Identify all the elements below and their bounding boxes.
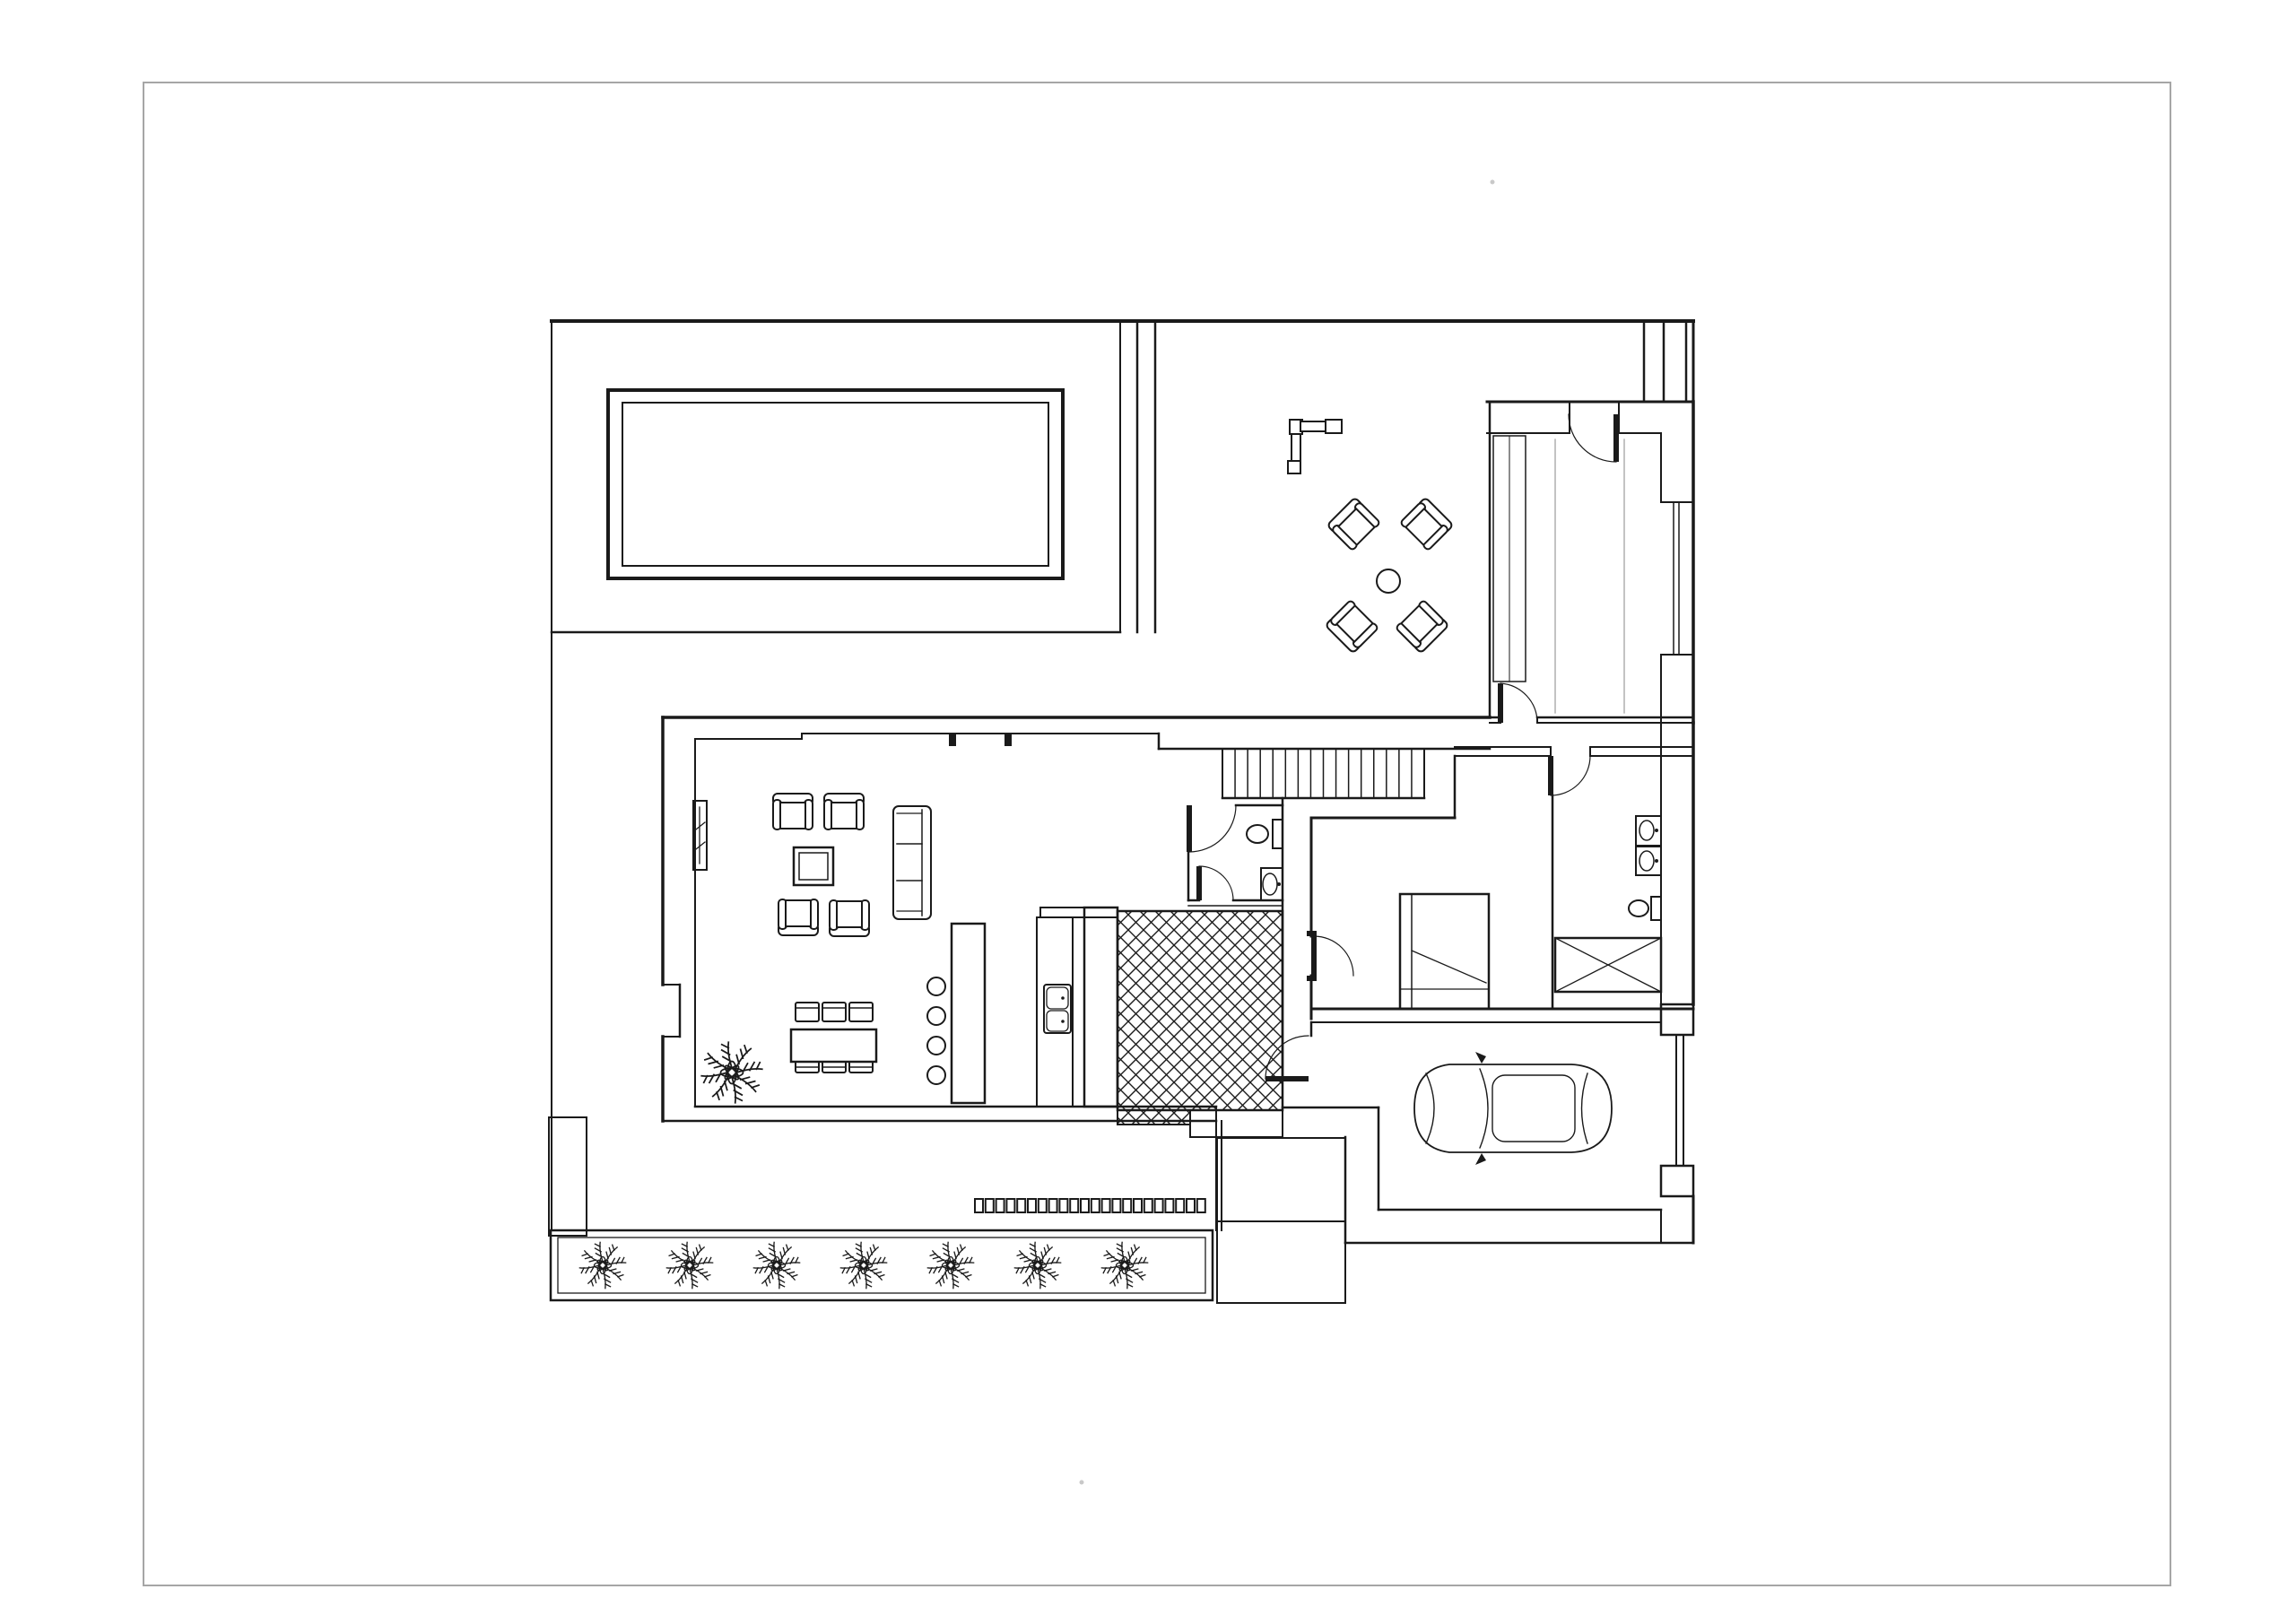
toilet-icon [1629, 897, 1661, 920]
garage-door [1676, 1035, 1683, 1166]
bed-icon [1400, 894, 1489, 1009]
bar-stools [927, 977, 945, 1084]
entry-landing [1190, 1110, 1283, 1137]
pool-terrace [552, 321, 1155, 632]
kitchen-sink-icon [1044, 985, 1071, 1033]
concrete-pads [1217, 1138, 1345, 1303]
hall-bottom-wall [1490, 717, 1693, 723]
column-tick [1004, 734, 1012, 746]
plan-root [549, 180, 1693, 1485]
artifact-dots [1080, 180, 1495, 1485]
hall-window [1661, 502, 1693, 655]
living-furniture [701, 794, 931, 1103]
bathroom [1311, 723, 1693, 1036]
entry-hatch-floor [1118, 911, 1283, 1137]
planter-shrubs [579, 1242, 1147, 1288]
pool [608, 390, 1063, 578]
fire-pit-circle [1377, 569, 1400, 593]
patio [1288, 420, 1453, 653]
indoor-plant [701, 1042, 762, 1103]
car-icon [1414, 1052, 1612, 1165]
outdoor-step [549, 1117, 587, 1236]
column-tick [949, 734, 956, 746]
dining-set [791, 1003, 876, 1073]
toilet-icon [1247, 820, 1283, 848]
floor-plan-drawing [0, 0, 2296, 1624]
corridor-walls [1455, 747, 1693, 818]
door-powder-room [1196, 866, 1233, 900]
hall-entry-door [1569, 414, 1619, 462]
wardrobe-closet [1493, 436, 1624, 713]
kitchen-counter-top [1040, 908, 1118, 917]
page-border [143, 83, 2170, 1585]
bathroom-door [1548, 756, 1590, 795]
living-armchairs [773, 794, 869, 936]
door-stairhall [1187, 805, 1236, 852]
bedroom [1307, 795, 1552, 1019]
entrance-hall [1487, 323, 1693, 723]
kitchen [927, 908, 1118, 1107]
patio-chairs [1326, 498, 1454, 654]
coffee-table-icon [794, 847, 833, 885]
kitchen-island [952, 924, 985, 1103]
bbq-grill-icon [1288, 420, 1342, 473]
double-washbasin-icon [1636, 816, 1661, 875]
hall-inner-door [1498, 683, 1537, 723]
sofa-icon [893, 806, 931, 919]
stair-treads [1235, 749, 1412, 798]
dining-table-icon [791, 1029, 876, 1062]
deck-slats [975, 1199, 1205, 1212]
south-yard [549, 1117, 1213, 1300]
planter [551, 1230, 1213, 1300]
floor-plan-sheet [0, 0, 2296, 1624]
kitchen-wall [1084, 908, 1118, 1107]
washbasin-icon [1261, 868, 1283, 900]
shower-icon [1555, 938, 1661, 992]
bedroom-door [1311, 936, 1353, 976]
staircase [1222, 749, 1424, 798]
